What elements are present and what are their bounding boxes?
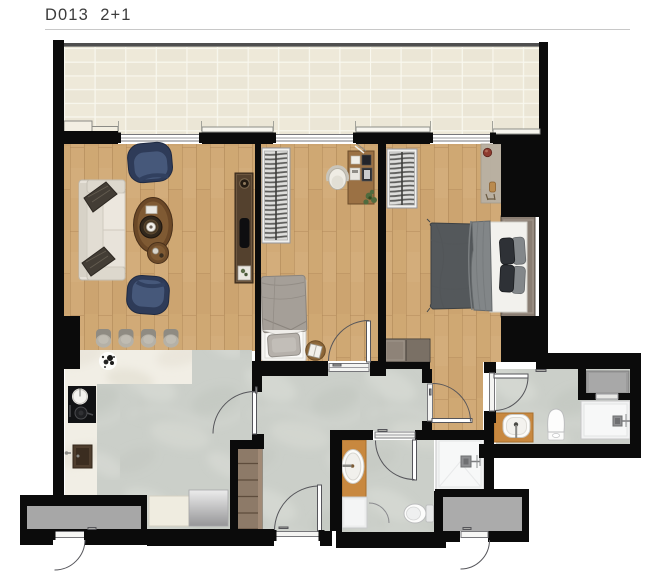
svg-text:D013 2+1: D013 2+1 xyxy=(45,6,132,24)
